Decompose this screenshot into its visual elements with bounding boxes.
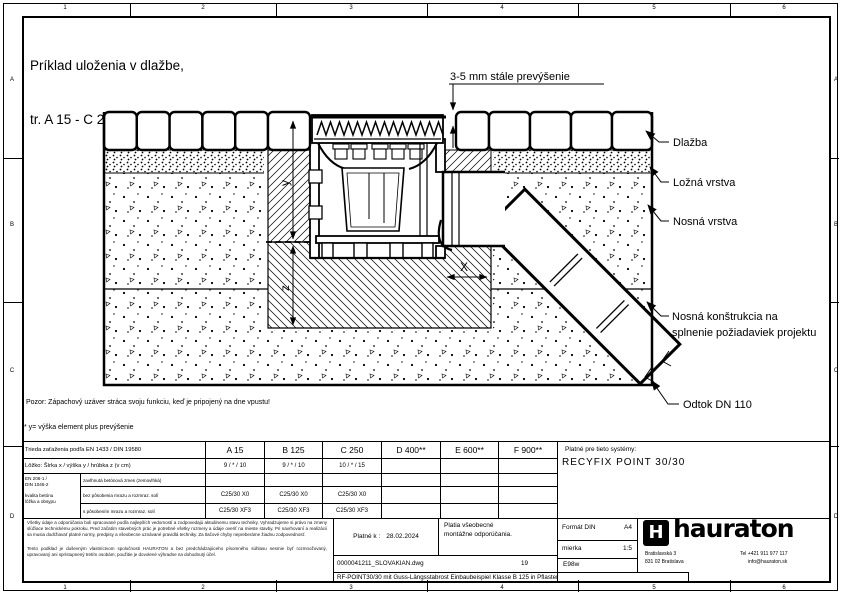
bedding-value [382, 459, 441, 474]
concrete-value [499, 487, 558, 504]
concrete-row-label: zavlhnutá betónová zmes (zemovlhká) [81, 474, 206, 487]
bedding-row-label: Lôžko: Šírka x / výška y / hrúbka z (v c… [23, 459, 206, 474]
class-header: A 15 [206, 442, 265, 459]
sediment-bucket [342, 168, 404, 231]
concrete-value: C25/30 XF3 [265, 504, 323, 519]
table-row: s pôsobením mrazu a rozmraz. solí C25/30… [23, 504, 558, 519]
concrete-row-label: s pôsobením mrazu a rozmraz. solí [81, 504, 206, 519]
class-header: C 250 [323, 442, 382, 459]
paver [170, 112, 203, 150]
leader-outlet [652, 381, 679, 404]
titleblock-line [557, 558, 637, 559]
company-address-line2: 831 02 Bratislava [645, 560, 684, 566]
class-header: B 125 [265, 442, 323, 459]
paver [530, 112, 571, 150]
concrete-value [441, 474, 499, 487]
table-row: Trieda zaťaženia podľa EN 1433 / DIN 195… [23, 442, 558, 459]
label-structure-line1: Nosná konštrukcia na [672, 311, 779, 323]
titleblock-line [333, 555, 557, 556]
concrete-standard-line: lôžka a obsypu [25, 499, 78, 505]
class-header: F 900** [499, 442, 558, 459]
drain-leg [354, 243, 367, 258]
drawing-description: RF-POINT30/30 mit Guss-Längsstabrost Ein… [337, 574, 558, 581]
logo-letter: H [648, 522, 663, 543]
titleblock-line [22, 441, 830, 442]
callout-labels: Dlažba Ložná vrstva Nosná vrstva Nosná k… [672, 137, 816, 411]
concrete-standard-cell: EN 206-1 / DIN 1045-2 kvalita betónu lôž… [23, 474, 81, 519]
systems-label: Platné pre tieto systémy: [565, 446, 636, 453]
general-note-cell: Platia všeobecné montážne odporúčania. [444, 521, 554, 539]
hauraton-logo-icon: H [643, 520, 669, 546]
paver [456, 112, 489, 150]
spec-table: Trieda zaťaženia podľa EN 1433 / DIN 195… [22, 441, 558, 519]
dim-label-y: y [278, 180, 292, 186]
hauraton-logo-text: hauraton [673, 514, 794, 543]
concrete-value [382, 487, 441, 504]
bedding-layer-right [491, 150, 652, 173]
concrete-value: C25/30 X0 [265, 487, 323, 504]
concrete-value [265, 474, 323, 487]
drain-leg [422, 243, 433, 258]
filter-cups [333, 144, 424, 159]
titleblock-line [438, 518, 439, 555]
concrete-value: C25/30 XF3 [323, 504, 382, 519]
drain-bottom-plate [316, 236, 439, 243]
base-layer-left [104, 173, 268, 289]
label-base: Nosná vrstva [673, 216, 738, 228]
concrete-value [499, 474, 558, 487]
file-name: 0000041211_SLOVAKIAN.dwg [337, 560, 424, 567]
paver [235, 112, 268, 150]
concrete-side-right [443, 150, 491, 172]
system-name: RECYFIX POINT 30/30 [562, 457, 685, 468]
concrete-value [441, 504, 499, 519]
concrete-value [382, 504, 441, 519]
drain-rib [309, 170, 322, 183]
general-note-line2: montážne odporúčania. [444, 530, 554, 539]
titleblock-line [333, 572, 688, 573]
format-value: A4 [600, 524, 632, 531]
paver [571, 112, 612, 150]
drain-leg [390, 243, 403, 258]
concrete-value [382, 474, 441, 487]
concrete-value: C25/30 XF3 [206, 504, 265, 519]
titleblock-line [688, 572, 689, 583]
bedding-value: 9 / * / 10 [206, 459, 265, 474]
valid-label: Platné k : [353, 533, 380, 540]
dim-label-x: X [460, 260, 468, 274]
scale-label: mierka [562, 545, 582, 552]
bedding-value [499, 459, 558, 474]
company-email: info@hauraton.sk [748, 560, 787, 566]
table-row: EN 206-1 / DIN 1045-2 kvalita betónu lôž… [23, 474, 558, 487]
sheet-number: 19 [508, 560, 528, 567]
fine-print-1: Všetky údaje a odporúčania boli spracova… [27, 520, 327, 538]
dim-label-z: z [278, 285, 292, 291]
concrete-value: C25/30 X0 [323, 487, 382, 504]
company-address-line1: Bratislavská 3 [645, 552, 676, 558]
company-phone: Tel +421 911 977 117 [740, 552, 788, 558]
drain-rib [309, 206, 322, 219]
paver [268, 112, 310, 150]
class-header: E 600** [441, 442, 499, 459]
general-note-line1: Platia všeobecné [444, 521, 554, 530]
concrete-value [499, 504, 558, 519]
drawing-code: E98w [563, 561, 579, 568]
paver [137, 112, 170, 150]
titleblock-line [637, 518, 638, 572]
concrete-value [441, 487, 499, 504]
drain-leg [322, 243, 333, 258]
concrete-value [323, 474, 382, 487]
concrete-side-left [268, 150, 312, 242]
fine-print-2: Tento podklad je duševným vlastníctvom s… [27, 546, 327, 558]
load-class-label: Trieda zaťaženia podľa EN 1433 / DIN 195… [23, 442, 206, 459]
label-pavement: Dlažba [673, 137, 708, 149]
valid-date: 28.02.2024 [386, 533, 419, 540]
table-row: Lôžko: Šírka x / výška y / hrúbka z (v c… [23, 459, 558, 474]
titleblock-line [557, 441, 558, 583]
label-bedding: Ložná vrstva [673, 177, 736, 189]
class-header: D 400** [382, 442, 441, 459]
paver [202, 112, 235, 150]
drain-wall-right-lower [436, 246, 445, 258]
label-structure-line2: splnenie požiadaviek projektu [672, 327, 816, 339]
warning-note: Pozor: Zápachový uzáver stráca svoju fun… [26, 399, 270, 407]
label-outlet: Odtok DN 110 [683, 399, 752, 411]
table-row: bez pôsobenia mrazu a rozmraz. solí C25/… [23, 487, 558, 504]
footnote: * y= výška element plus prevýšenie [24, 424, 134, 432]
scale-value: 1:5 [600, 545, 632, 552]
bedding-layer-left [104, 150, 268, 173]
bedding-value: 9 / * / 10 [265, 459, 323, 474]
paver [489, 112, 530, 150]
concrete-value: C25/30 X0 [206, 487, 265, 504]
paver [104, 112, 137, 150]
format-label: Formát DIN [562, 524, 596, 531]
bedding-value [441, 459, 499, 474]
valid-date-cell: Platné k : 28.02.2024 [334, 518, 438, 555]
concrete-row-label: bez pôsobenia mrazu a rozmraz. solí [81, 487, 206, 504]
top-note-label: 3-5 mm stále prevýšenie [450, 71, 570, 83]
concrete-value [206, 474, 265, 487]
titleblock-line [557, 540, 637, 541]
drawing-sheet: 1 2 3 4 5 6 1 2 3 4 5 6 A B C D A B C D … [0, 0, 842, 595]
concrete-standard-line: DIN 1045-2 [25, 482, 78, 488]
bedding-value: 10 / * / 15 [323, 459, 382, 474]
